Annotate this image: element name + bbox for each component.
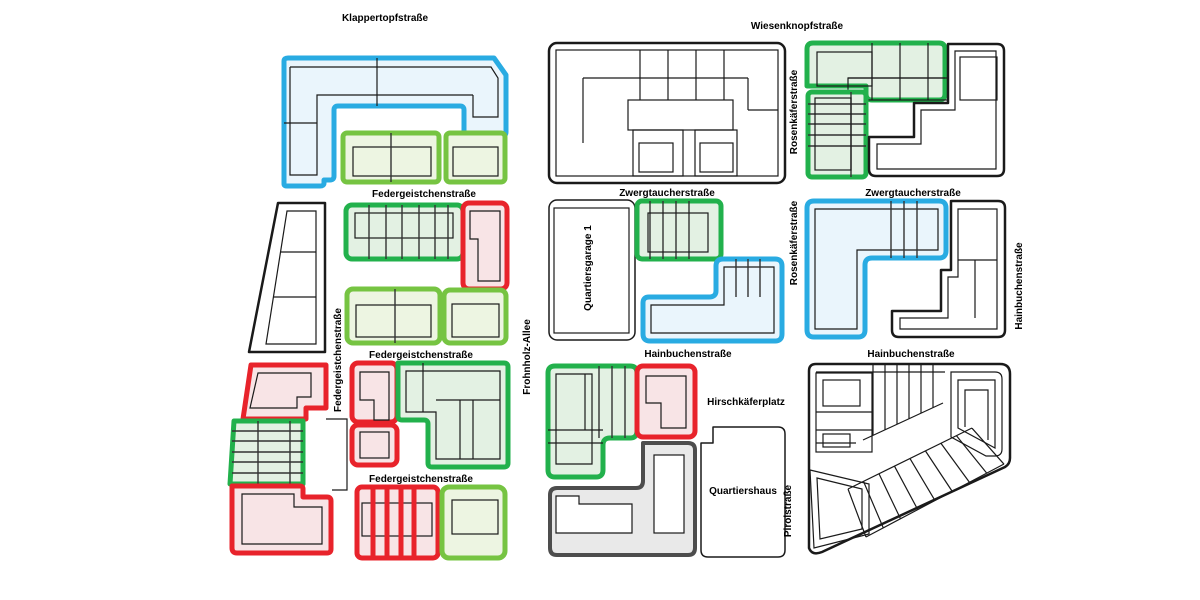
block-federgeist-1 (346, 203, 507, 343)
street-label-federgeistchenstrasse-2: Federgeistchenstraße (369, 350, 473, 361)
block-middle-right (807, 201, 1005, 337)
site-plan-page: Klappertopfstraße Wiesenknopfstraße Fede… (0, 0, 1200, 600)
building-footprint-white (654, 455, 684, 533)
building-green-l (398, 363, 508, 467)
street-label-hirschkaeferplatz: Hirschkäferplatz (707, 397, 785, 408)
site-plan-canvas: Klappertopfstraße Wiesenknopfstraße Fede… (0, 0, 1200, 600)
building-lightgreen (446, 133, 505, 182)
block-klappertopf (284, 58, 506, 186)
block-federgeist-3 (357, 487, 505, 558)
street-label-klappertopfstrasse: Klappertopfstraße (342, 13, 429, 24)
block-top-right (807, 43, 1004, 177)
street-label-hainbuchenstrasse-right: Hainbuchenstraße (867, 349, 955, 360)
street-label-zwergtaucherstrasse-1: Zwergtaucherstraße (619, 188, 715, 199)
block-bottom-left (230, 365, 347, 553)
building-red-l (232, 486, 331, 553)
plot-edge (326, 419, 347, 490)
block-bottom-right (809, 364, 1010, 553)
street-label-pirolstrasse: Pirolstraße (783, 484, 794, 537)
block-trapezoid (249, 203, 325, 352)
street-label-frohnholz-allee: Frohnholz-Allee (522, 319, 533, 395)
street-label-hainbuchenstrasse-vertical: Hainbuchenstraße (1014, 242, 1025, 330)
building-lightgreen (347, 289, 440, 343)
street-label-wiesenknopfstrasse: Wiesenknopfstraße (751, 21, 844, 32)
block-federgeist-2 (352, 363, 508, 467)
block-wiesenknopf (549, 43, 785, 183)
street-label-rosenkaeferstrasse-1: Rosenkäferstraße (789, 69, 800, 154)
building-white-trapezoid (249, 203, 325, 352)
building-label-quartiershaus: Quartiershaus (709, 486, 777, 497)
building-white-block (549, 43, 785, 183)
street-label-zwergtaucherstrasse-2: Zwergtaucherstraße (865, 188, 961, 199)
block-quartiershaus (548, 366, 785, 557)
building-blue-l (643, 259, 782, 341)
building-lightgreen (444, 290, 506, 343)
street-label-federgeistchenstrasse-vertical: Federgeistchenstraße (333, 308, 344, 412)
street-label-federgeistchenstrasse-1: Federgeistchenstraße (372, 189, 476, 200)
street-label-rosenkaeferstrasse-2: Rosenkäferstraße (789, 200, 800, 285)
building-red (352, 425, 397, 465)
building-red-rowhouses (357, 487, 438, 558)
street-label-federgeistchenstrasse-3: Federgeistchenstraße (369, 474, 473, 485)
street-label-hainbuchenstrasse-mid: Hainbuchenstraße (644, 349, 732, 360)
building-label-quartiersgarage: Quartiersgarage 1 (583, 225, 594, 311)
